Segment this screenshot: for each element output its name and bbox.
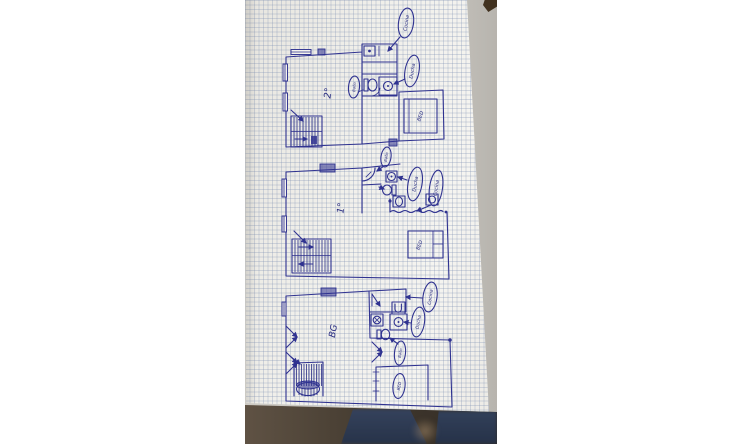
- photo-of-floorplan-sketch: BED Cocina Baño Ducha 2°: [0, 0, 740, 444]
- jeans-leg-right: [435, 411, 497, 444]
- table-corner: [483, 0, 497, 12]
- graph-paper-sheet: [245, 0, 497, 444]
- foot-highlight: [411, 418, 439, 444]
- photo-strip: [245, 0, 497, 444]
